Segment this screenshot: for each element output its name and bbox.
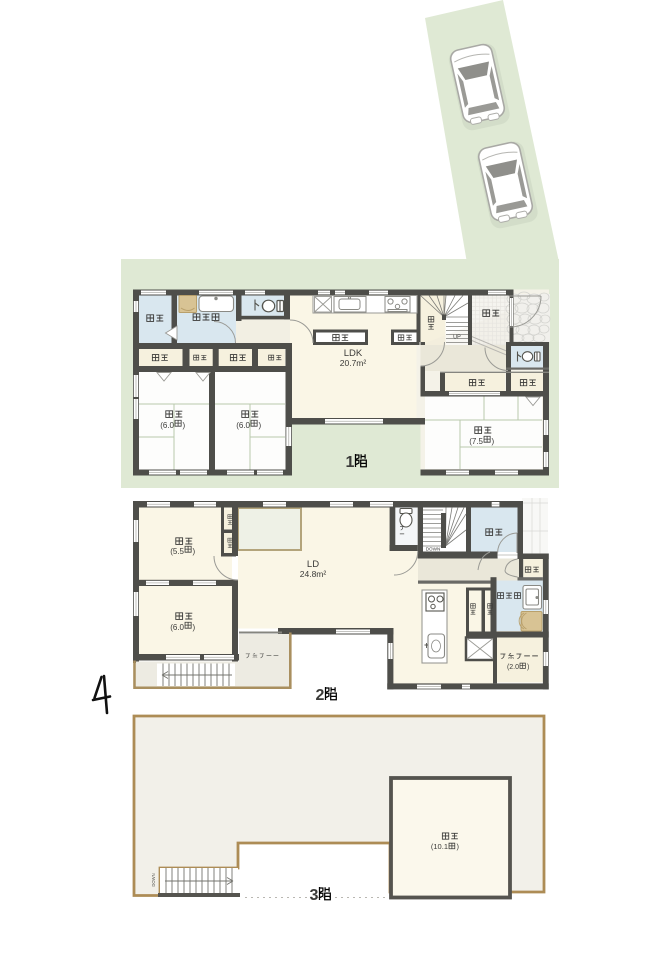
svg-text:(6.0: (6.0 <box>236 421 250 430</box>
svg-text:(6.0: (6.0 <box>170 623 184 632</box>
svg-text:UP: UP <box>453 335 461 341</box>
svg-text:): ) <box>183 421 186 430</box>
svg-text:DOWN: DOWN <box>426 547 441 552</box>
svg-text:): ) <box>193 547 196 556</box>
svg-text:(2.0: (2.0 <box>507 664 519 671</box>
svg-text:2: 2 <box>316 687 325 704</box>
svg-text:): ) <box>492 437 495 446</box>
svg-text:): ) <box>527 664 529 671</box>
svg-text:): ) <box>259 421 262 430</box>
svg-text:1: 1 <box>346 454 355 471</box>
svg-text:DOWN: DOWN <box>151 873 156 886</box>
svg-text:(6.0: (6.0 <box>160 421 174 430</box>
svg-text:(7.5: (7.5 <box>469 437 483 446</box>
svg-text:3: 3 <box>310 887 319 904</box>
svg-text:24.8m²: 24.8m² <box>300 569 327 579</box>
svg-text:(5.5: (5.5 <box>170 547 184 556</box>
svg-text:(10.1: (10.1 <box>431 842 448 851</box>
svg-text:): ) <box>193 623 196 632</box>
svg-text:20.7m²: 20.7m² <box>340 358 367 368</box>
